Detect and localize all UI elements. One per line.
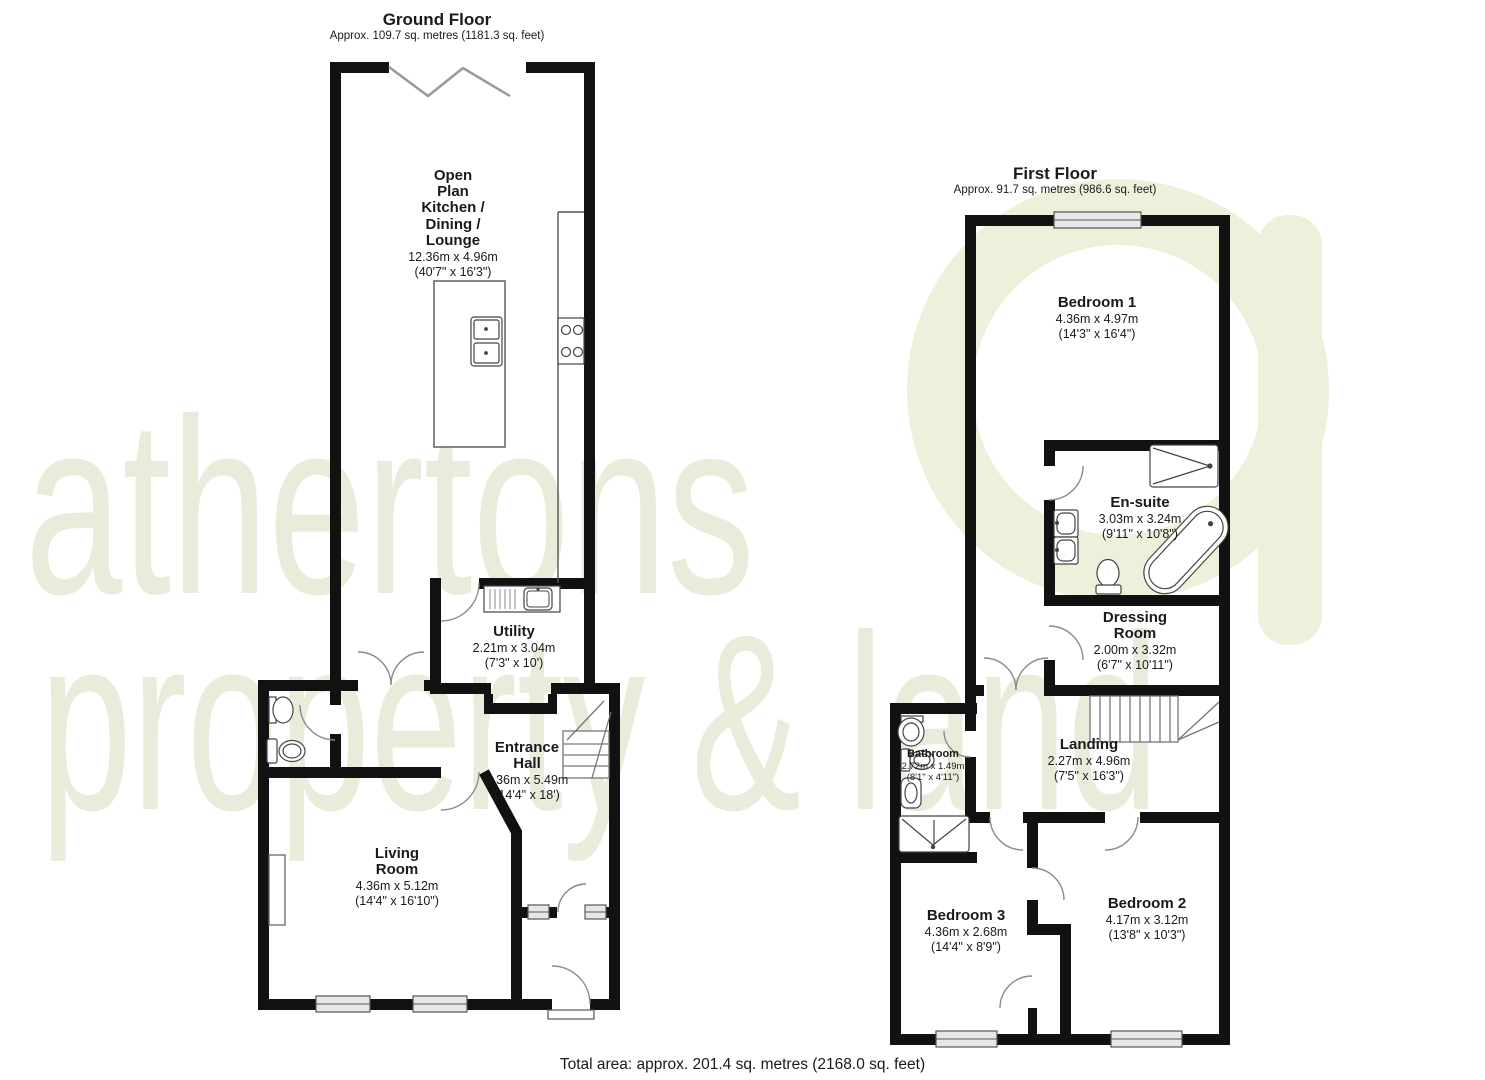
- sink-icon: [471, 317, 502, 366]
- door-arc: [552, 966, 590, 1004]
- room-label-landing: Landing 2.27m x 4.96m (7'5" x 16'3"): [969, 737, 1209, 784]
- room-label-entrance-hall: Entrance Hall 4.36m x 5.49m (14'4" x 18'…: [407, 740, 647, 803]
- ground-floor-title: Ground Floor: [317, 11, 557, 30]
- ground-floor-subtitle: Approx. 109.7 sq. metres (1181.3 sq. fee…: [317, 30, 557, 44]
- toilet-icon: [267, 739, 305, 763]
- room-label-kitchen: Open Plan Kitchen / Dining / Lounge 12.3…: [333, 168, 573, 279]
- hob-icon: [558, 318, 584, 364]
- floorplan-page: athertons property & land: [0, 0, 1485, 1080]
- window: [316, 905, 606, 1012]
- shower-tray-icon: [899, 816, 969, 852]
- door-arc: [990, 817, 1023, 850]
- room-label-bedroom1: Bedroom 1 4.36m x 4.97m (14'3" x 16'4"): [977, 295, 1217, 342]
- first-floor-title: First Floor: [935, 165, 1175, 184]
- bifold-door-icon: [389, 67, 510, 96]
- front-door-step: [548, 1010, 594, 1019]
- room-label-ensuite: En-suite 3.03m x 3.24m (9'11" x 10'8"): [1020, 495, 1260, 542]
- door-arc: [300, 705, 335, 740]
- wc-basin-icon: [269, 697, 293, 723]
- utility-sink-icon: [484, 586, 560, 612]
- door-arc: [441, 583, 479, 621]
- toilet-icon: [1096, 560, 1121, 595]
- door-arc: [558, 884, 586, 912]
- door-arc: [358, 652, 391, 685]
- ground-floor-windows: [316, 905, 606, 1012]
- door-arc: [984, 658, 1016, 690]
- first-floor-subtitle: Approx. 91.7 sq. metres (986.6 sq. feet): [935, 184, 1175, 198]
- first-floor-header: First Floor Approx. 91.7 sq. metres (986…: [935, 165, 1175, 197]
- door-arc: [1105, 817, 1138, 850]
- door-arc: [1000, 976, 1032, 1008]
- ground-floor-header: Ground Floor Approx. 109.7 sq. metres (1…: [317, 11, 557, 43]
- shower-icon: [1150, 445, 1218, 487]
- room-label-living-room: Living Room 4.36m x 5.12m (14'4" x 16'10…: [277, 846, 517, 909]
- room-label-bathroom: Bathroom 2.72m x 1.49m (8'1" x 4'11"): [873, 749, 993, 783]
- room-label-utility: Utility 2.21m x 3.04m (7'3" x 10'): [394, 624, 634, 671]
- total-area-text: Total area: approx. 201.4 sq. metres (21…: [0, 1056, 1485, 1074]
- room-label-dressing-room: Dressing Room 2.00m x 3.32m (6'7" x 10'1…: [1015, 610, 1255, 673]
- bathroom-basin-icon: [898, 716, 924, 746]
- room-label-bedroom2: Bedroom 2 4.17m x 3.12m (13'8" x 10'3"): [1027, 896, 1267, 943]
